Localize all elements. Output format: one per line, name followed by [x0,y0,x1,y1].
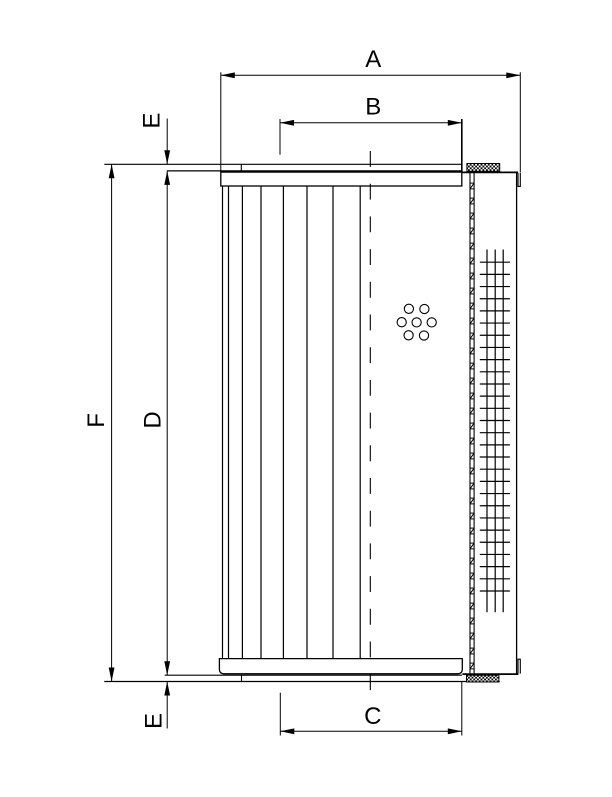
svg-text:F: F [83,413,110,428]
svg-text:B: B [365,94,381,121]
svg-text:E: E [139,113,166,129]
svg-text:D: D [140,411,167,428]
svg-text:E: E [140,713,167,729]
svg-text:A: A [365,46,381,73]
svg-text:C: C [364,703,381,730]
